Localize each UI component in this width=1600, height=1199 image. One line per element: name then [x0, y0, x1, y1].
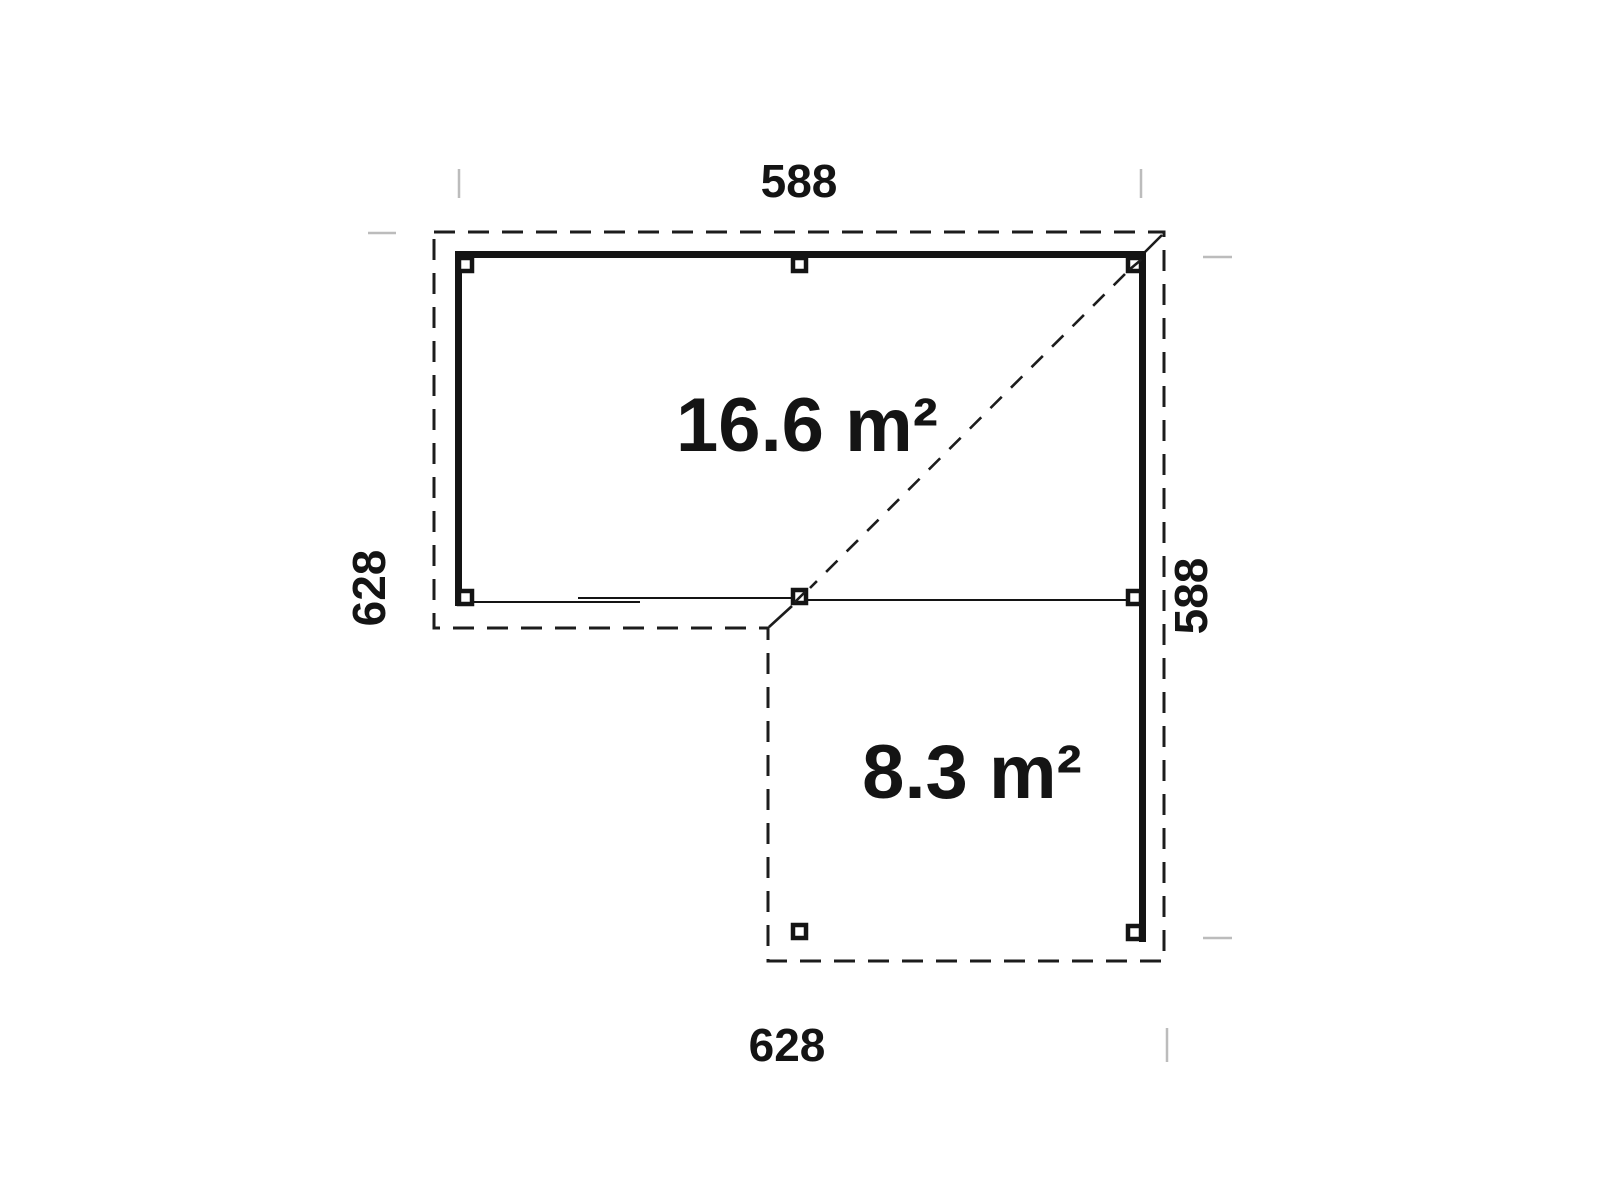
floor-plan-drawing: 588 628 588 628 16.6 m² 8.3 m²: [0, 0, 1600, 1199]
dimension-label-bottom: 628: [749, 1019, 826, 1071]
dimension-label-left: 628: [343, 550, 395, 627]
dimension-label-top: 588: [761, 155, 838, 207]
floor-plan-canvas: 588 628 588 628 16.6 m² 8.3 m²: [0, 0, 1600, 1199]
post-top-middle: [793, 258, 806, 271]
area-label-main: 16.6 m²: [676, 383, 938, 468]
post-right-middle: [1128, 591, 1141, 604]
area-label-annex: 8.3 m²: [862, 730, 1082, 815]
post-front-left: [459, 591, 472, 604]
dimension-label-right: 588: [1165, 558, 1217, 635]
post-top-left: [459, 258, 472, 271]
roof-diagonal-segment-bottom: [769, 606, 792, 627]
post-bottom-right: [1128, 926, 1141, 939]
roof-diagonal-segment-top: [1145, 235, 1162, 252]
post-bottom-left: [793, 925, 806, 938]
